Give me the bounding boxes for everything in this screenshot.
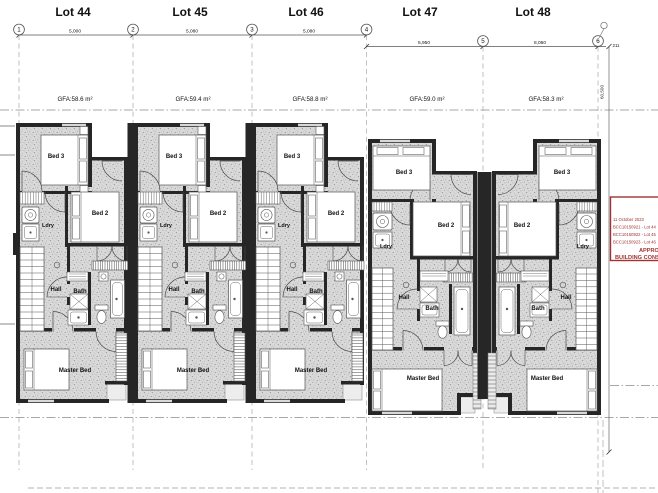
svg-text:Bed 3: Bed 3 (48, 154, 65, 160)
svg-text:GFA:59.0 m²: GFA:59.0 m² (409, 96, 444, 103)
svg-text:5,080: 5,080 (186, 29, 198, 35)
svg-text:Lot 48: Lot 48 (515, 5, 551, 19)
svg-text:Master Bed: Master Bed (177, 368, 210, 374)
svg-text:6: 6 (596, 38, 600, 45)
svg-text:Bed 2: Bed 2 (92, 211, 109, 217)
svg-text:Bath: Bath (191, 289, 205, 295)
svg-text:Ldry: Ldry (160, 223, 173, 229)
svg-text:Lot 46: Lot 46 (288, 5, 324, 19)
svg-text:5,080: 5,080 (303, 29, 315, 35)
svg-text:APPROVED: APPROVED (639, 248, 658, 254)
svg-text:Bed 2: Bed 2 (328, 211, 345, 217)
svg-text:8,050: 8,050 (534, 40, 546, 46)
svg-text:Master Bed: Master Bed (407, 376, 440, 382)
svg-text:Bath: Bath (309, 289, 323, 295)
svg-text:2: 2 (131, 27, 135, 34)
svg-text:5: 5 (481, 38, 485, 45)
svg-text:BCC10150923 - Lot 46: BCC10150923 - Lot 46 (613, 240, 657, 245)
svg-text:1: 1 (17, 27, 21, 34)
svg-text:GFA:59.4 m²: GFA:59.4 m² (175, 96, 210, 103)
svg-text:Ldry: Ldry (42, 223, 55, 229)
svg-text:211: 211 (613, 43, 621, 48)
svg-text:BUILDING CONSENT: BUILDING CONSENT (615, 255, 658, 261)
svg-text:Bed 3: Bed 3 (396, 170, 413, 176)
svg-text:3: 3 (250, 27, 254, 34)
svg-text:Ldry: Ldry (380, 244, 393, 250)
svg-text:4: 4 (365, 27, 369, 34)
svg-text:BCC10150922 - Lot 45: BCC10150922 - Lot 45 (613, 232, 657, 237)
svg-text:Hall: Hall (286, 287, 297, 293)
svg-text:Ldry: Ldry (577, 244, 590, 250)
svg-text:Bed 3: Bed 3 (166, 154, 183, 160)
svg-text:Bed 2: Bed 2 (210, 211, 227, 217)
svg-text:5,000: 5,000 (69, 29, 81, 35)
svg-text:Lot 45: Lot 45 (172, 5, 208, 19)
svg-text:Hall: Hall (560, 295, 571, 301)
svg-text:60,500: 60,500 (600, 85, 605, 99)
svg-text:Bed 3: Bed 3 (284, 154, 301, 160)
svg-text:Hall: Hall (398, 295, 409, 301)
svg-text:Bed 3: Bed 3 (554, 170, 571, 176)
svg-text:GFA:58.3 m²: GFA:58.3 m² (528, 96, 563, 103)
svg-text:11 October 2023: 11 October 2023 (613, 217, 645, 222)
svg-text:BCC10150921 - Lot 44: BCC10150921 - Lot 44 (613, 225, 657, 230)
svg-text:Master Bed: Master Bed (59, 368, 92, 374)
svg-text:Bed 2: Bed 2 (438, 223, 455, 229)
svg-text:Bed 2: Bed 2 (514, 223, 531, 229)
svg-text:GFA:58.8 m²: GFA:58.8 m² (292, 96, 327, 103)
svg-text:Bath: Bath (531, 306, 545, 312)
svg-text:Bath: Bath (73, 289, 87, 295)
svg-text:Master Bed: Master Bed (531, 376, 564, 382)
svg-text:Lot 44: Lot 44 (55, 5, 91, 19)
svg-text:Lot 47: Lot 47 (402, 5, 438, 19)
svg-text:GFA:58.6 m²: GFA:58.6 m² (57, 96, 92, 103)
svg-text:Bath: Bath (425, 306, 439, 312)
svg-text:Master Bed: Master Bed (295, 368, 328, 374)
svg-text:Ldry: Ldry (278, 223, 291, 229)
svg-text:Hall: Hall (168, 287, 179, 293)
svg-text:5,950: 5,950 (418, 40, 430, 46)
svg-text:Hall: Hall (50, 287, 61, 293)
